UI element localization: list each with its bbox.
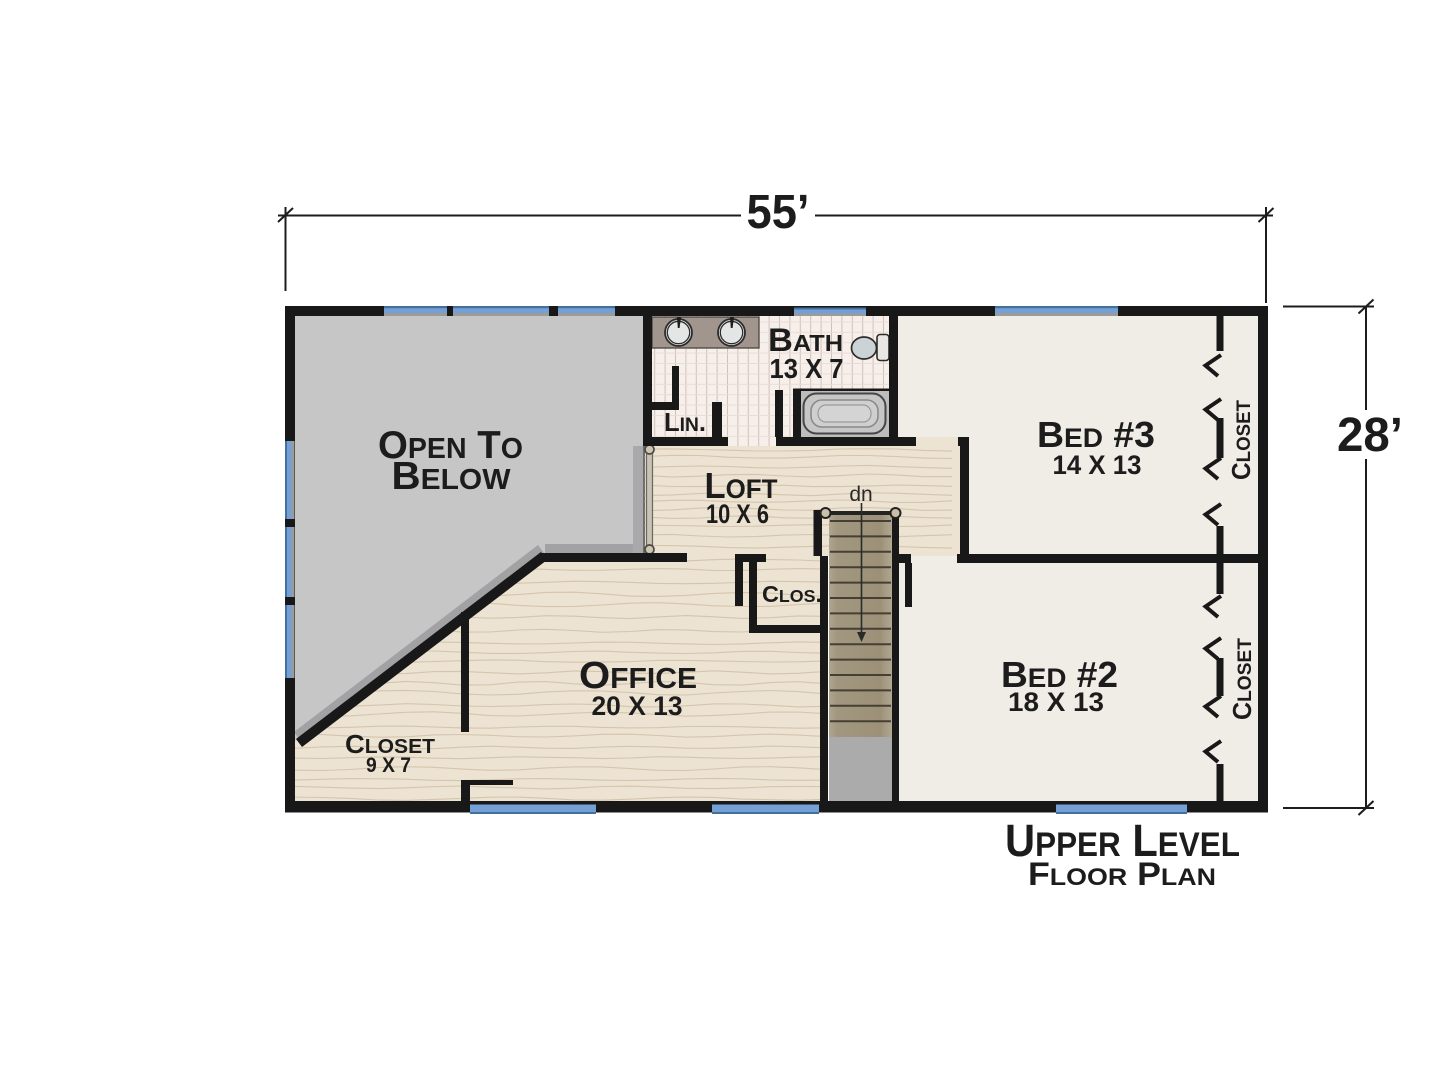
svg-text:14 X 13: 14 X 13 xyxy=(1053,450,1142,480)
svg-text:28’: 28’ xyxy=(1337,409,1403,462)
svg-text:55’: 55’ xyxy=(747,186,810,239)
svg-text:9 X 7: 9 X 7 xyxy=(366,754,411,777)
svg-text:CLOSET: CLOSET xyxy=(1229,638,1257,720)
svg-text:dn: dn xyxy=(849,483,872,506)
svg-text:20 X 13: 20 X 13 xyxy=(592,691,683,721)
svg-text:13 X 7: 13 X 7 xyxy=(770,353,844,384)
svg-text:CLOSET: CLOSET xyxy=(1228,400,1256,480)
svg-text:10 X 6: 10 X 6 xyxy=(706,499,769,529)
svg-text:18 X 13: 18 X 13 xyxy=(1008,687,1104,717)
